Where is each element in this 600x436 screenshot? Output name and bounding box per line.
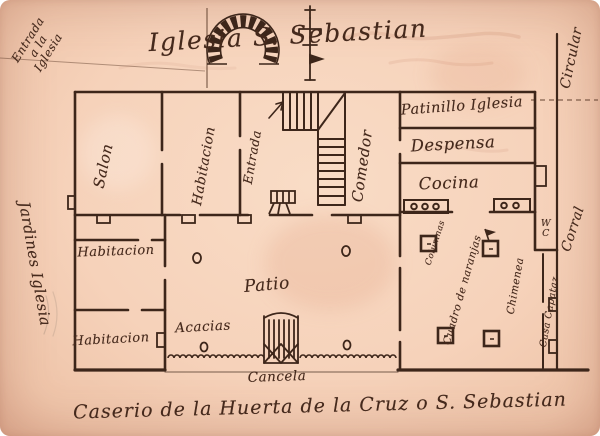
tree-circles (193, 246, 351, 352)
label-habitacion-mid: Habitacion (77, 244, 155, 260)
gate-icon (264, 313, 298, 363)
door-notches (68, 166, 557, 353)
staircase (269, 93, 345, 205)
label-despensa: Despensa (410, 133, 496, 155)
fence-line (168, 355, 396, 358)
label-cocina: Cocina (418, 173, 479, 192)
label-patio: Patio (243, 275, 290, 297)
label-cancela: Cancela (248, 369, 307, 385)
label-acacias: Acacias (175, 318, 231, 335)
label-wc: W C (541, 219, 551, 239)
label-wc-line2: C (541, 229, 551, 239)
walls (75, 34, 588, 372)
entrance-grill-icon (269, 191, 295, 214)
scanned-floor-plan-page: Iglesia S. Sebastian Entrada a la Iglesi… (0, 0, 600, 436)
